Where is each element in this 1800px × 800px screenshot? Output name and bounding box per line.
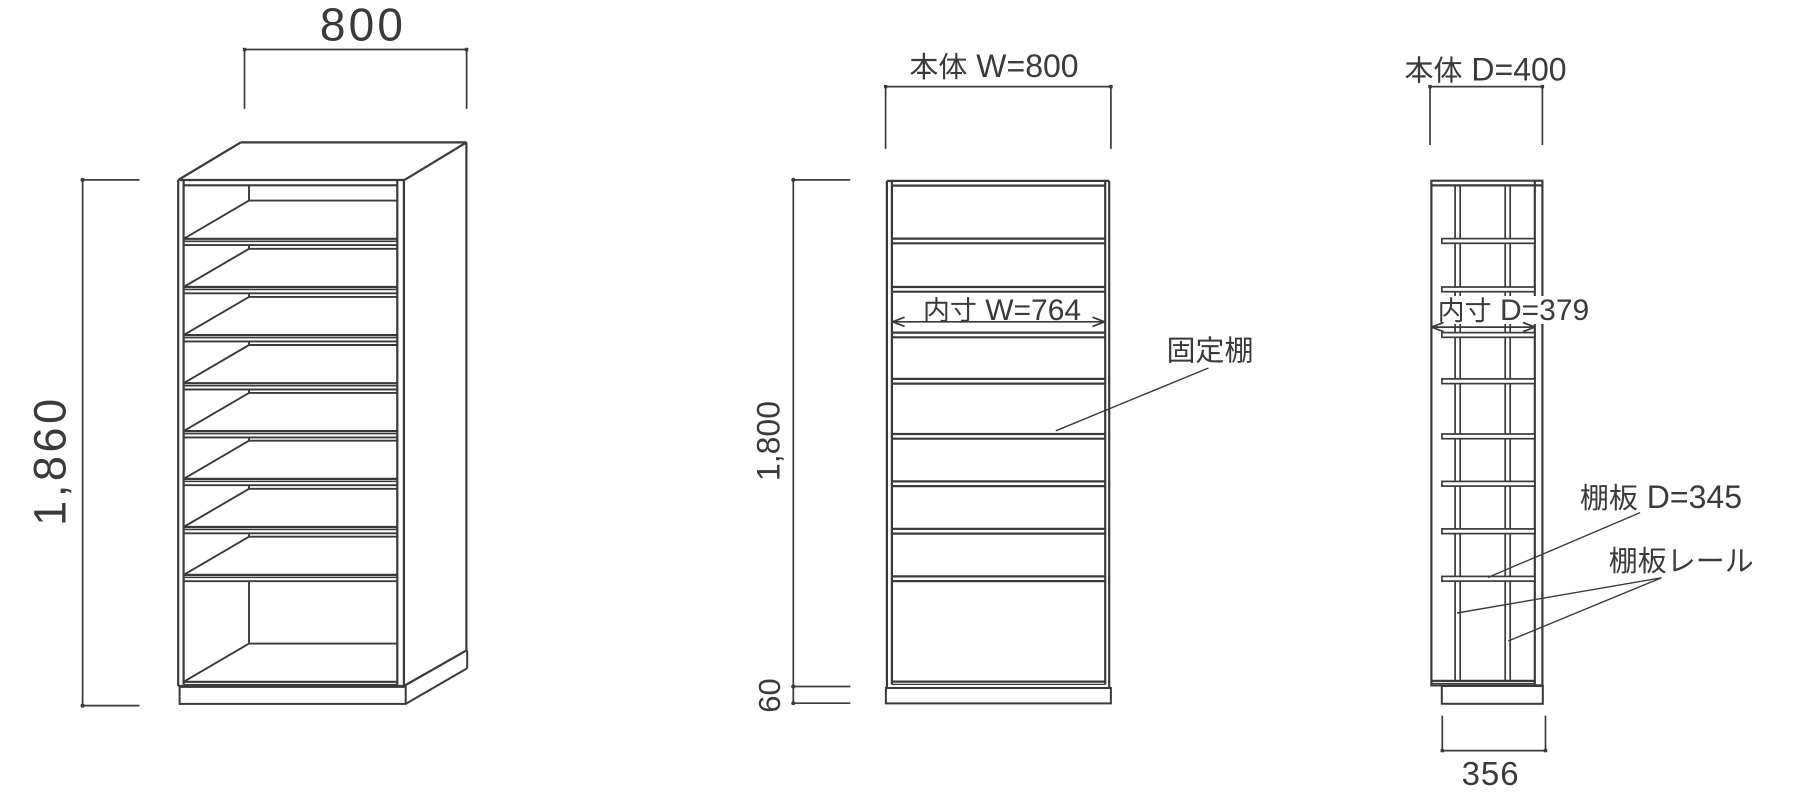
svg-text:356: 356 [1462,755,1520,792]
svg-text:D=379: D=379 [1500,294,1589,327]
svg-text:1,860: 1,860 [25,395,76,526]
svg-text:D=345: D=345 [1647,479,1742,515]
svg-text:W=800: W=800 [976,48,1078,84]
svg-text:60: 60 [752,678,787,712]
svg-text:800: 800 [320,0,406,50]
svg-text:D=400: D=400 [1471,52,1566,88]
svg-text:1,800: 1,800 [751,401,787,481]
